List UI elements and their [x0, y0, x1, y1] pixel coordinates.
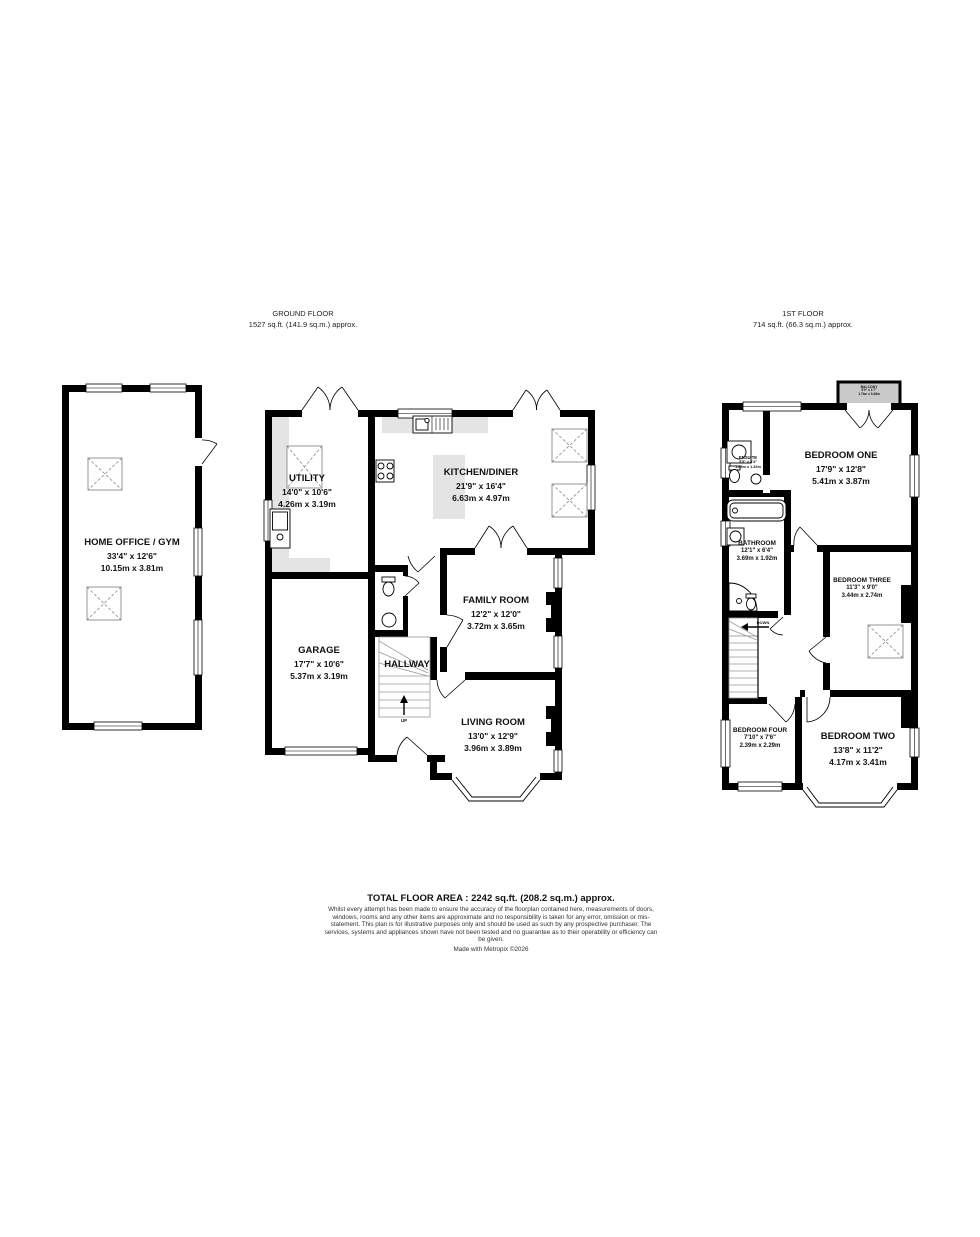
hob-icon: [376, 460, 394, 482]
room-label-family-room: FAMILY ROOM 12'2" x 12'0" 3.72m x 3.65m: [463, 594, 529, 632]
utility-sink-icon: [270, 509, 290, 548]
room-label-ensuite: ENSUITE 5'5" x 4'4" 1.65m x 1.32m: [735, 455, 761, 470]
room-label-balcony: BALCONY 5'9" x 1'7" 1.74m x 0.48m: [858, 385, 880, 397]
room-label-living-room: LIVING ROOM 13'0" x 12'9" 3.96m x 3.89m: [461, 716, 525, 754]
toilet-icon: [382, 577, 395, 596]
toilet-icon: [746, 594, 756, 610]
bath-icon: [727, 500, 786, 521]
ground-floor-area: 1527 sq.ft. (141.9 sq.m.) approx.: [249, 319, 357, 330]
skylight-icon: [868, 625, 903, 658]
room-label-home-office: HOME OFFICE / GYM 33'4" x 12'6" 10.15m x…: [84, 536, 180, 574]
room-label-hallway: HALLWAY: [384, 658, 430, 672]
door-icon: [194, 438, 217, 466]
stairs-icon: [379, 637, 430, 717]
room-label-bedroom-two: BEDROOM TWO 13'8" x 11'2" 4.17m x 3.41m: [821, 730, 895, 768]
first-floor-header: 1ST FLOOR 714 sq.ft. (66.3 sq.m.) approx…: [753, 308, 853, 331]
room-label-garage: GARAGE 17'7" x 10'6" 5.37m x 3.19m: [290, 644, 348, 682]
garage-door-icon: [285, 747, 357, 755]
room-label-bedroom-four: BEDROOM FOUR 7'10" x 7'6" 2.39m x 2.29m: [733, 727, 787, 751]
ground-floor-plan: [264, 387, 595, 801]
room-label-utility: UTILITY 14'0" x 10'6" 4.26m x 3.19m: [278, 472, 336, 510]
fireplace-icon: [901, 696, 911, 728]
stairs-up-label: UP: [401, 718, 407, 723]
first-floor-title: 1ST FLOOR: [753, 308, 853, 319]
disclaimer-text: Whilst every attempt has been made to en…: [321, 906, 661, 944]
room-label-bathroom: BATHROOM 12'1" x 6'4" 3.69m x 1.92m: [737, 540, 778, 564]
room-label-bedroom-three: BEDROOM THREE 11'3" x 9'0" 3.44m x 2.74m: [833, 577, 891, 601]
basin-icon: [382, 613, 396, 627]
room-label-bedroom-one: BEDROOM ONE 17'9" x 12'8" 5.41m x 3.87m: [805, 449, 878, 487]
fireplace-icon: [901, 585, 911, 623]
basin-icon: [751, 474, 761, 484]
room-label-kitchen-diner: KITCHEN/DINER 21'9" x 16'4" 6.63m x 4.97…: [444, 466, 518, 504]
first-floor-area: 714 sq.ft. (66.3 sq.m.) approx.: [753, 319, 853, 330]
ground-floor-header: GROUND FLOOR 1527 sq.ft. (141.9 sq.m.) a…: [249, 308, 357, 331]
ground-floor-title: GROUND FLOOR: [249, 308, 357, 319]
kitchen-sink-icon: [413, 416, 452, 433]
metropix-credit: Made with Metropix ©2026: [454, 946, 529, 953]
wall: [368, 548, 375, 762]
bay-window-icon: [452, 777, 540, 801]
floorplan-canvas: GROUND FLOOR 1527 sq.ft. (141.9 sq.m.) a…: [0, 0, 980, 1237]
total-floor-area: TOTAL FLOOR AREA : 2242 sq.ft. (208.2 sq…: [367, 893, 614, 904]
utility-counter: [272, 558, 330, 572]
stairs-down-label: DOWN: [757, 620, 770, 625]
